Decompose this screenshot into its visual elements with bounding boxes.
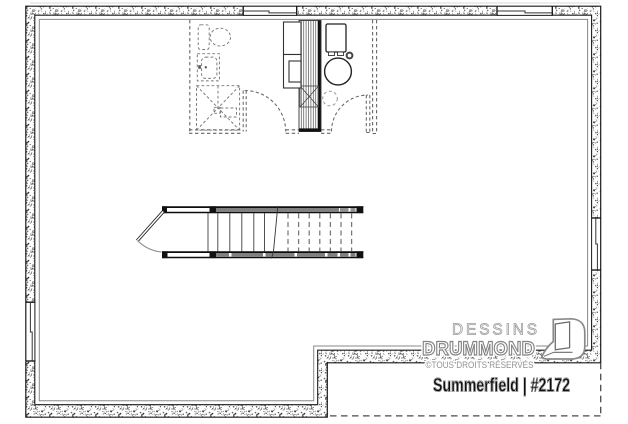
svg-text:DESSINS: DESSINS [452, 322, 540, 339]
svg-text:DRUMMOND: DRUMMOND [422, 338, 535, 360]
svg-text:©TOUS DROITS RÉSERVÉS: ©TOUS DROITS RÉSERVÉS [426, 360, 534, 370]
svg-text:Summerfield | #2172: Summerfield | #2172 [433, 374, 570, 396]
